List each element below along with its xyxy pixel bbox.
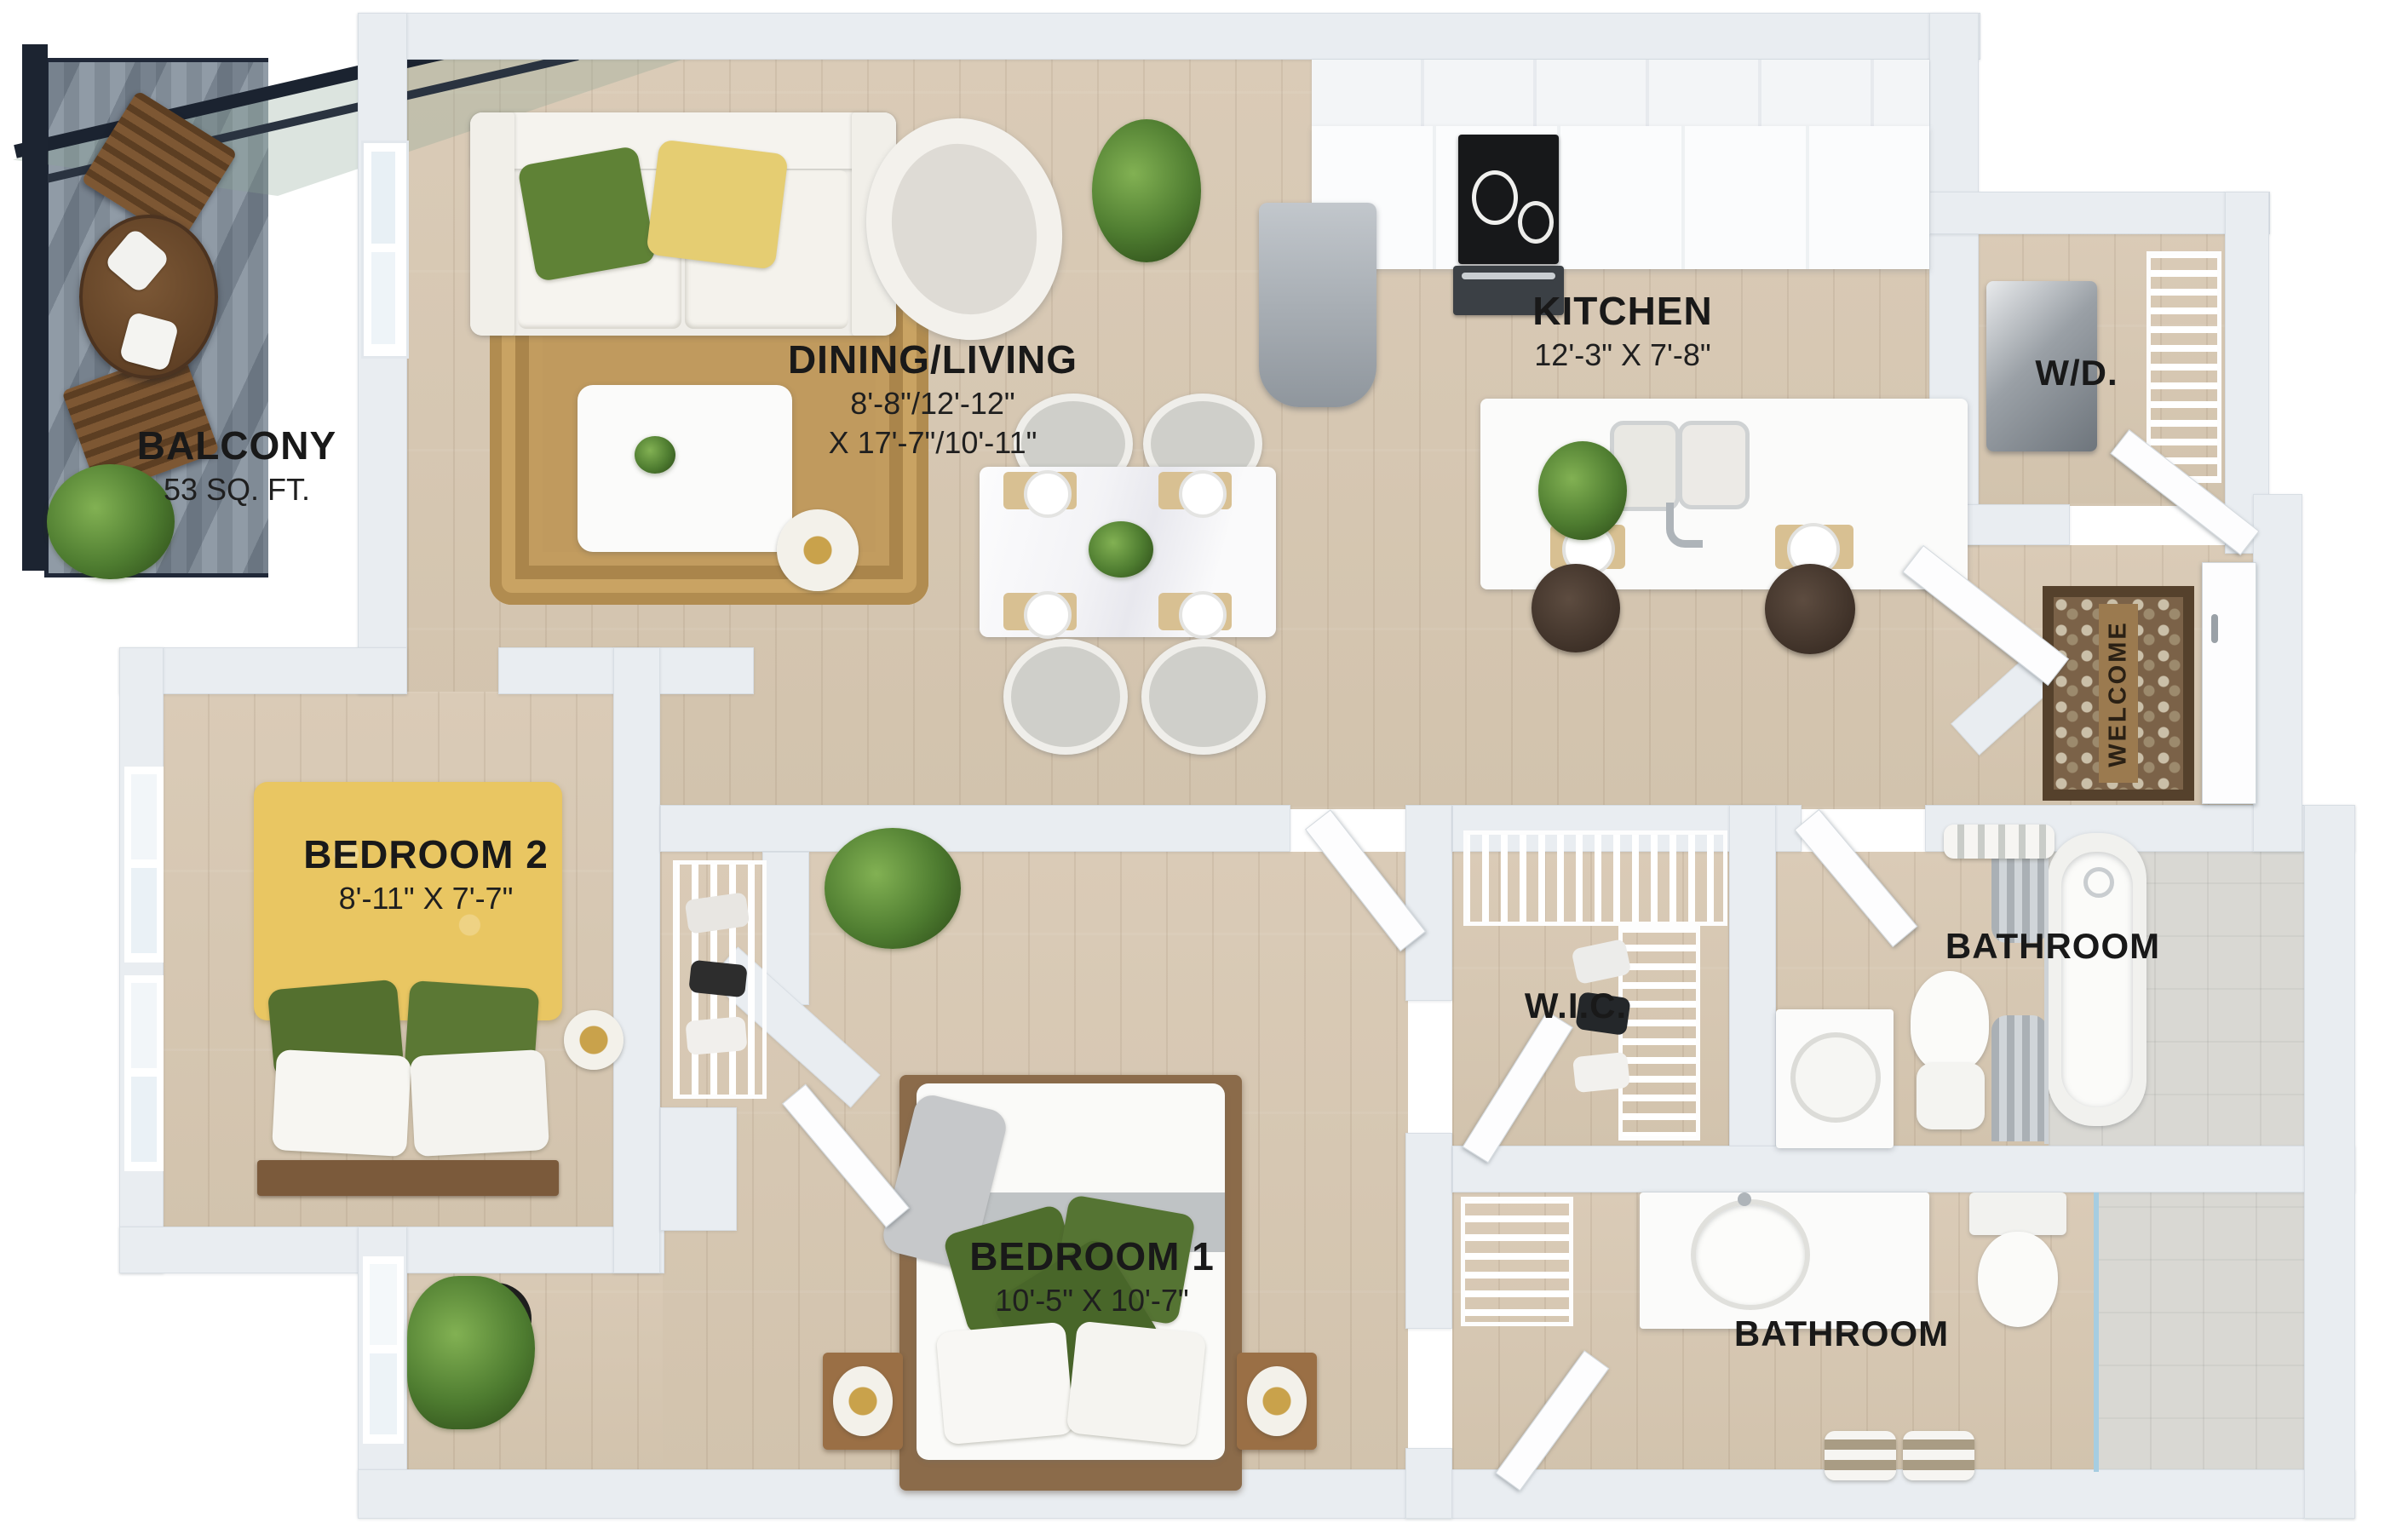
bedroom1-label: BEDROOM 1 10'-5" X 10'-7" xyxy=(969,1233,1215,1319)
bath2-sink xyxy=(1691,1199,1810,1310)
floorplan-canvas: WELCOME xyxy=(0,0,2385,1540)
island-plant xyxy=(1538,441,1627,540)
window-pane xyxy=(371,252,395,344)
bedroom2-label: BEDROOM 2 8'-11" X 7'-7" xyxy=(303,831,549,917)
window xyxy=(124,975,164,1171)
linen-wire-shelf xyxy=(1461,1197,1573,1326)
kitchen-appliance xyxy=(1259,203,1376,407)
bed2-nightstand-lamp xyxy=(564,1010,624,1070)
wall xyxy=(2304,805,2355,1519)
wall xyxy=(660,805,1290,852)
window-pane xyxy=(131,868,157,953)
bath2-toilet-bowl xyxy=(1978,1232,2058,1327)
wall xyxy=(660,1107,737,1231)
dining-plate xyxy=(1024,591,1072,639)
island-faucet xyxy=(1666,503,1703,548)
bar-stool xyxy=(1532,564,1620,652)
window-pane xyxy=(370,1353,397,1434)
balcony-frame-post xyxy=(22,44,48,571)
room-name: W.I.C. xyxy=(1525,985,1627,1026)
wall xyxy=(1729,805,1776,1192)
bathtub xyxy=(2048,833,2146,1126)
window xyxy=(124,767,164,962)
stove-burner xyxy=(1518,201,1554,244)
window-pane xyxy=(131,774,157,859)
bath1-sink xyxy=(1790,1032,1881,1123)
wic-label: W.I.C. xyxy=(1525,985,1627,1026)
nightstand-lamp xyxy=(833,1366,893,1436)
wd-label: W/D. xyxy=(2035,353,2118,394)
coffee-table-plant xyxy=(635,436,675,474)
dining-living-label: DINING/LIVING 8'-8"/12'-12" X 17'-7"/10'… xyxy=(788,336,1078,461)
bathroom-top-label: BATHROOM xyxy=(1945,926,2160,967)
bath1-toilet-seat xyxy=(1917,1063,1985,1129)
bed2-headboard xyxy=(257,1160,559,1196)
stove-cooktop xyxy=(1458,135,1559,264)
shower-curtain-rod xyxy=(2044,830,2049,1144)
towel-rack xyxy=(1944,825,2055,859)
window-pane xyxy=(370,1264,397,1345)
wall xyxy=(613,647,660,1273)
bathtub-drain xyxy=(2083,867,2114,898)
stove-burner xyxy=(1472,170,1518,225)
bath2-faucet xyxy=(1738,1192,1751,1206)
welcome-mat-text: WELCOME xyxy=(2105,620,2133,767)
towel-roll xyxy=(1825,1431,1896,1480)
window-pane xyxy=(371,152,395,244)
wall xyxy=(1929,192,2270,234)
wall xyxy=(2253,494,2302,852)
wall xyxy=(1405,1448,1452,1519)
wd-wire-shelf xyxy=(2146,251,2221,483)
room-name: BATHROOM xyxy=(1734,1313,1949,1354)
room-dims: X 17'-7"/10'-11" xyxy=(788,425,1078,461)
bed1-pillow-white xyxy=(1066,1320,1207,1445)
kitchen-counter xyxy=(1312,126,1929,269)
closet-clothes xyxy=(688,960,748,998)
room-name: BEDROOM 2 xyxy=(303,831,549,877)
dining-centerpiece-plant xyxy=(1089,521,1153,577)
entry-side-door xyxy=(2202,562,2256,804)
window-pane xyxy=(131,983,157,1068)
wall xyxy=(1405,1133,1452,1329)
room-name: BEDROOM 1 xyxy=(969,1233,1215,1279)
room-name: BALCONY xyxy=(137,422,336,468)
window xyxy=(363,1256,404,1444)
welcome-mat-board: WELCOME xyxy=(2099,604,2138,783)
bed1-pillow-white xyxy=(936,1322,1075,1445)
wall xyxy=(1405,805,1452,1001)
room-dims: 53 SQ. FT. xyxy=(137,472,336,508)
wall xyxy=(358,13,1980,60)
dining-chair xyxy=(1003,639,1128,755)
window-pane xyxy=(131,1077,157,1162)
balcony-label: BALCONY 53 SQ. FT. xyxy=(137,422,336,508)
kitchen-label: KITCHEN 12'-3" X 7'-8" xyxy=(1532,288,1712,373)
room-name: BATHROOM xyxy=(1945,926,2160,967)
room-dims: 12'-3" X 7'-8" xyxy=(1532,337,1712,373)
room-name: KITCHEN xyxy=(1532,288,1712,334)
window xyxy=(361,141,409,359)
oven-handle xyxy=(1462,273,1555,279)
bath1-toilet-lid xyxy=(1911,971,1989,1072)
wic-wire-shelf-top xyxy=(1463,830,1727,926)
kitchen-upper-cabinets xyxy=(1312,60,1929,126)
floor-lamp xyxy=(777,509,859,591)
wall xyxy=(1452,1146,2355,1192)
sofa-pillow-yellow xyxy=(646,139,788,270)
dining-plate xyxy=(1179,591,1227,639)
shower-curtain xyxy=(1991,1015,2048,1141)
tile-floor-shower xyxy=(2097,1192,2306,1472)
bath2-toilet-tank xyxy=(1969,1192,2066,1235)
closet-clothes xyxy=(685,1016,747,1055)
bar-stool xyxy=(1765,564,1855,654)
welcome-mat: WELCOME xyxy=(2043,586,2194,801)
wic-wire-shelf-right xyxy=(1618,926,1700,1141)
coffee-table xyxy=(578,385,792,552)
dining-plate xyxy=(1179,470,1227,518)
wall xyxy=(358,1469,2355,1519)
dining-plate xyxy=(1024,470,1072,518)
bathroom-bottom-label: BATHROOM xyxy=(1734,1313,1949,1354)
bed2-pillow-white xyxy=(410,1049,549,1157)
nightstand-lamp xyxy=(1247,1366,1307,1436)
bed2-pillow-white xyxy=(272,1049,411,1157)
living-plant xyxy=(1092,119,1201,262)
towel-roll xyxy=(1903,1431,1974,1480)
bedroom1-plant xyxy=(825,828,961,949)
sofa-pillow-green xyxy=(517,146,657,283)
sofa-armrest xyxy=(470,112,514,336)
island-sink-basin xyxy=(1678,421,1750,509)
door-handle xyxy=(2211,614,2218,643)
dining-chair xyxy=(1141,639,1266,755)
room-dims: 8'-8"/12'-12" xyxy=(788,386,1078,422)
room-dims: 8'-11" X 7'-7" xyxy=(303,881,549,917)
shower-glass xyxy=(2094,1192,2099,1472)
wic-clothes xyxy=(1572,1052,1630,1093)
room-name: W/D. xyxy=(2035,353,2118,394)
room-dims: 10'-5" X 10'-7" xyxy=(969,1283,1215,1319)
room-name: DINING/LIVING xyxy=(788,336,1078,382)
